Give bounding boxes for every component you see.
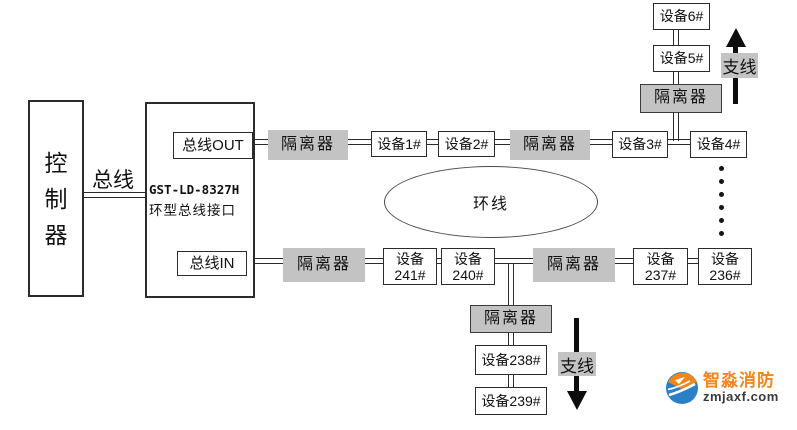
isolator-box-bottom-1: 隔离器 [283,248,365,282]
isolator-box-bottom-2: 隔离器 [533,248,615,282]
up-arrow-icon [726,28,746,47]
device-label-line1: 设备 [711,251,739,267]
wire-isolator4-to-device237 [615,258,633,264]
isolator-box-top-1: 隔离器 [268,130,348,160]
device-label-line2: 237# [645,267,676,283]
logo-icon [665,371,699,405]
logo: 智淼消防 zmjaxf.com [665,371,779,405]
branch-label-top: 支线 [721,53,758,78]
device-label-line2: 236# [709,267,740,283]
isolator-label: 隔离器 [654,89,708,107]
device-label: 设备2# [445,136,489,152]
device-label: 设备238# [481,352,540,368]
device-label-line2: 241# [394,267,425,283]
wire-device5-to-topbranch-isolator [673,72,679,84]
ring-bus-wiring-diagram: 控制器 总线 总线OUT GST-LD-8327H 环型总线接口 总线IN 隔离… [0,0,797,430]
device-label: 设备3# [618,136,662,152]
device-label: 设备6# [660,8,704,24]
isolator-box-branch-bottom: 隔离器 [470,305,552,333]
wire-isolator2-to-device3 [590,139,612,145]
device-box-3: 设备3# [612,131,668,158]
device-box-236: 设备 236# [698,248,752,285]
isolator-label: 隔离器 [523,136,577,154]
device-box-1: 设备1# [371,131,427,157]
device-box-5: 设备5# [653,45,710,72]
logo-text: 智淼消防 zmjaxf.com [703,372,779,403]
model-label: GST-LD-8327H [149,182,253,197]
device-box-241: 设备 241# [383,248,437,285]
isolator-label: 隔离器 [484,310,538,328]
wire-device6-to-device5 [673,30,679,45]
bus-label: 总线 [92,164,134,194]
controller-box: 控制器 [28,100,84,297]
wire-device240-to-isolator4 [495,258,533,264]
controller-label: 控制器 [45,145,68,253]
device-box-4: 设备4# [690,131,747,158]
wire-device1-to-device2 [427,139,438,145]
wire-isolator1-to-device1 [348,139,371,145]
branch-label-bottom: 支线 [558,352,596,376]
device-label-line1: 设备 [396,251,424,267]
device-box-240: 设备 240# [441,248,495,285]
interface-name-label: 环型总线接口 [149,199,253,219]
bus-out-label: 总线OUT [182,137,244,154]
wire-row-to-bottombranch-isolator [508,263,514,305]
bus-out-box: 总线OUT [173,132,253,159]
device-box-6: 设备6# [653,3,710,30]
device-box-238: 设备238# [475,345,547,375]
isolator-label: 隔离器 [297,256,351,274]
wire-bottombranch-isolator-to-device238 [508,333,514,345]
device-box-237: 设备 237# [633,248,688,285]
device-label: 设备5# [660,50,704,66]
device-label: 设备4# [697,136,741,152]
bus-in-label: 总线IN [189,255,234,272]
ring-ellipse: 环线 [384,166,598,238]
bus-in-box: 总线IN [177,251,247,276]
device-label: 设备239# [481,393,540,409]
isolator-box-top-2: 隔离器 [510,130,590,160]
isolator-label: 隔离器 [547,256,601,274]
isolator-box-branch-top: 隔离器 [640,84,722,113]
device-label-line2: 240# [452,267,483,283]
wire-device3-to-device4 [668,139,690,145]
logo-name: 智淼消防 [703,372,779,390]
ellipsis-dots [719,166,724,236]
logo-domain: zmjaxf.com [703,390,779,404]
device-label: 设备1# [377,136,421,152]
isolator-label: 隔离器 [281,136,335,154]
ring-label: 环线 [473,190,509,214]
wire-device237-to-device236 [688,258,698,264]
wire-topbranch-isolator-to-row [673,113,679,141]
down-arrow-icon [567,391,587,410]
device-label-line1: 设备 [647,251,675,267]
wire-device238-to-device239 [508,375,514,387]
wire-isolator3-to-device241 [365,258,383,264]
device-box-2: 设备2# [438,131,495,157]
device-box-239: 设备239# [475,387,547,415]
device-label-line1: 设备 [454,251,482,267]
